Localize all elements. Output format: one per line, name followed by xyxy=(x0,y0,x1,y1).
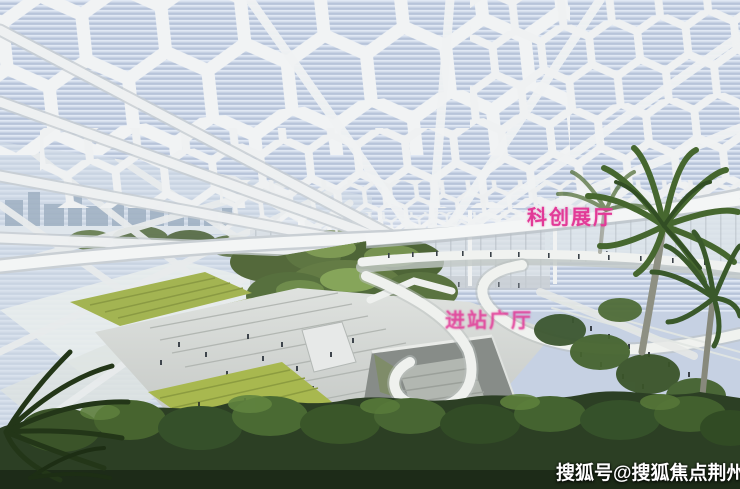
sohu-watermark: 搜狐号@搜狐焦点荆州站 xyxy=(556,458,740,485)
architectural-rendering-image: 科创展厅 进站广厅 搜狐号@搜狐焦点荆州站 xyxy=(0,0,740,489)
label-science-exhibition-hall: 科创展厅 xyxy=(527,201,615,230)
label-station-entry-hall: 进站广厅 xyxy=(445,304,533,333)
rendering-scene xyxy=(0,0,740,489)
